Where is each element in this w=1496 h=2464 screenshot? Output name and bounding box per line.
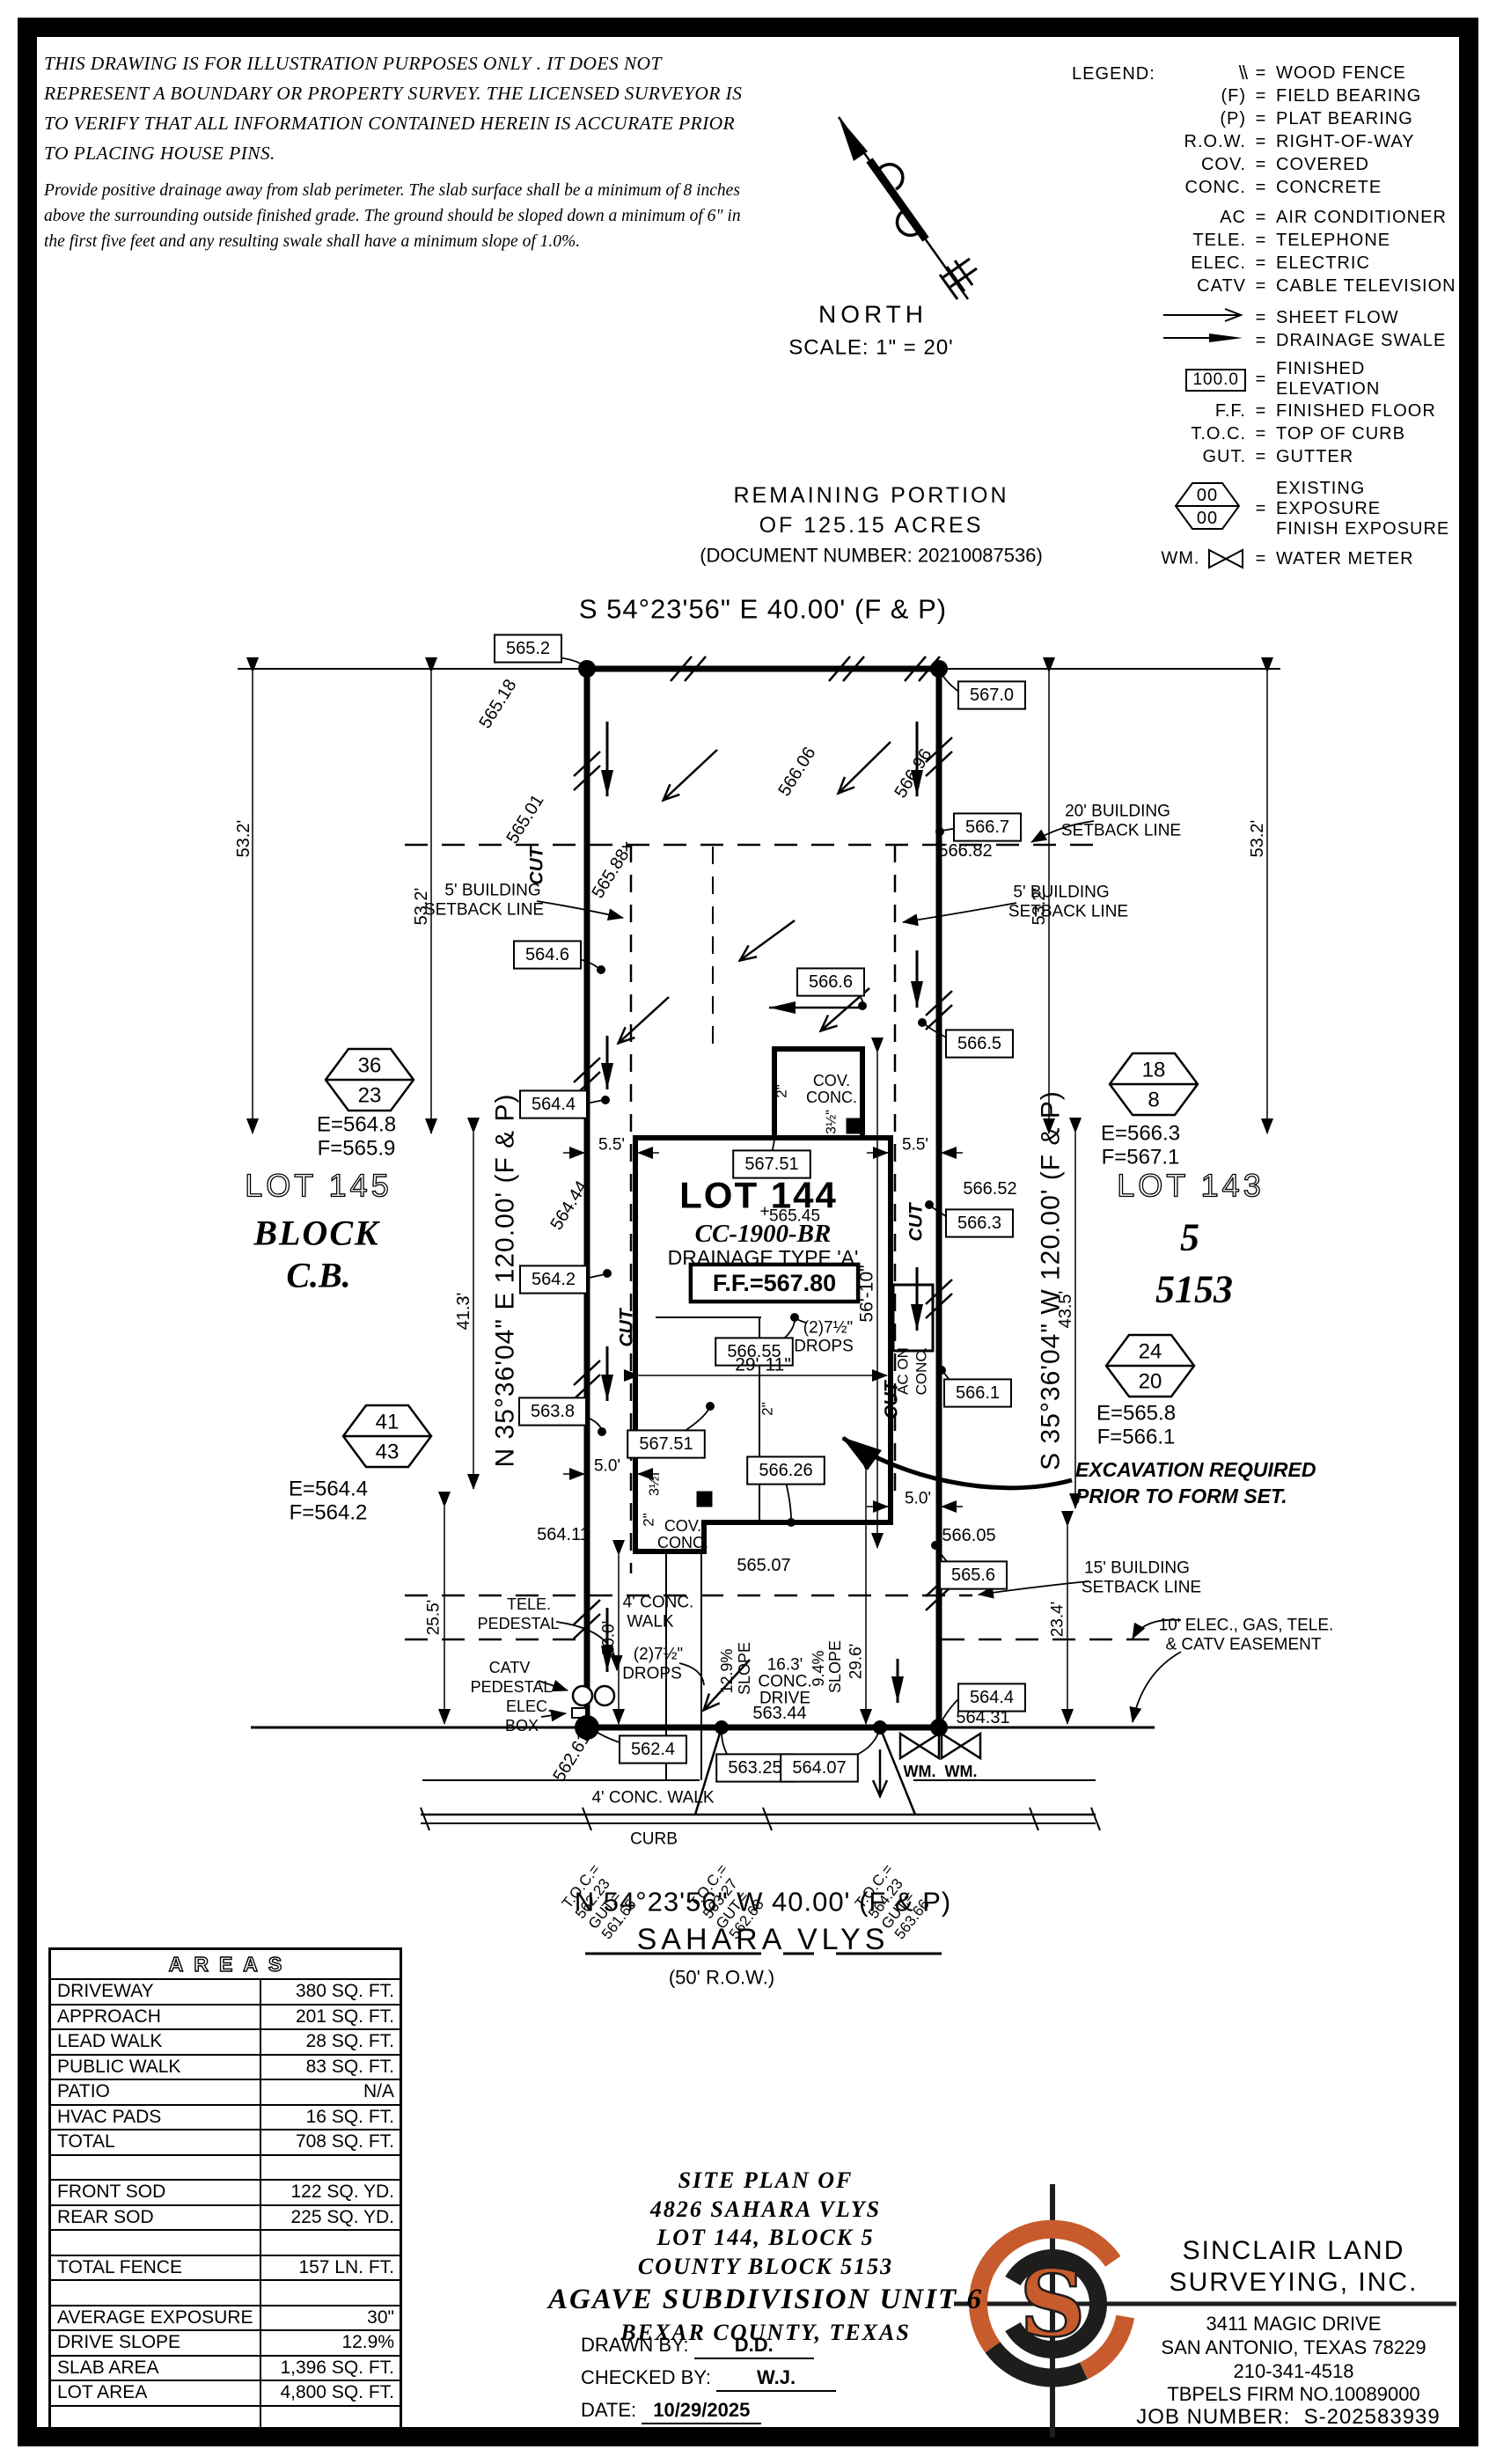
- water-meter-icon: [942, 1734, 980, 1758]
- plot-label: 2": [641, 1513, 657, 1527]
- checked-by-label: CHECKED BY:: [581, 2366, 711, 2388]
- plot-label: F=566.1: [1097, 1426, 1176, 1449]
- scale-label: SCALE: 1" = 20': [788, 336, 954, 360]
- legend-row-finished-floor: F.F.=FINISHED FLOOR: [1149, 400, 1459, 422]
- areas-table: AREAS DRIVEWAY380 SQ. FT.APPROACH201 SQ.…: [48, 1947, 402, 2432]
- areas-label: AVERAGE EXPOSURE: [51, 2306, 261, 2330]
- drawn-by-value: D.D.: [694, 2334, 814, 2359]
- legend-symbol: [1149, 330, 1246, 351]
- firm-street: 3411 MAGIC DRIVE: [1126, 2313, 1461, 2336]
- plot-label: 566.52: [963, 1179, 1016, 1199]
- areas-value: 1,396 SQ. FT.: [261, 2358, 400, 2379]
- legend-label: ELECTRIC: [1276, 253, 1459, 274]
- subdivision-name: AGAVE SUBDIVISION UNIT 6: [466, 2281, 1065, 2319]
- north-label: NORTH: [818, 301, 928, 328]
- areas-row-front-sod: FRONT SOD122 SQ. YD.: [51, 2181, 400, 2206]
- remaining-portion-line2: OF 125.15 ACRES: [759, 513, 984, 538]
- legend-label: DRAINAGE SWALE: [1276, 331, 1459, 351]
- legend: LEGEND: \\=WOOD FENCE(F)=FIELD BEARING(P…: [1072, 62, 1459, 570]
- plot-label: (2)7½": [634, 1646, 683, 1664]
- areas-label: [51, 2407, 261, 2431]
- porch-column: [847, 1118, 862, 1133]
- plot-label: 566.5: [957, 1034, 1001, 1053]
- plot-label: 16.3': [767, 1656, 803, 1675]
- areas-row-blank: [51, 2407, 400, 2431]
- bearing-east-line: S 35°36'04" W 120.00' (F & P): [1037, 1090, 1066, 1470]
- legend-row-plat-bearing: (P)=PLAT BEARING: [1149, 107, 1459, 130]
- legend-symbol: [1149, 307, 1246, 328]
- plot-label: DROPS: [794, 1338, 854, 1356]
- plot-label: 10' ELEC., GAS, TELE.: [1159, 1617, 1334, 1635]
- plot-label: 567.51: [639, 1434, 693, 1454]
- areas-value: N/A: [261, 2081, 400, 2102]
- plot-label: 29'-11": [735, 1355, 791, 1375]
- areas-row-patio: PATION/A: [51, 2080, 400, 2106]
- legend-symbol: (P): [1149, 109, 1246, 129]
- plot-label: (2)7½": [803, 1319, 853, 1338]
- legend-symbol: TELE.: [1149, 231, 1246, 251]
- firm-city: SAN ANTONIO, TEXAS 78229: [1126, 2336, 1461, 2360]
- svg-text:00: 00: [1197, 509, 1218, 528]
- plot-label: 567.51: [744, 1155, 798, 1174]
- areas-row-rear-sod: REAR SOD225 SQ. YD.: [51, 2206, 400, 2232]
- legend-label: TOP OF CURB: [1276, 424, 1459, 444]
- legend-row-cable-television: CATV=CABLE TELEVISION: [1149, 275, 1459, 297]
- plot-label: 53.2': [1248, 820, 1267, 858]
- plot-label: 5.0': [905, 1490, 931, 1508]
- plot-label: 20.0': [600, 1621, 619, 1657]
- legend-label: EXISTING EXPOSURE FINISH EXPOSURE: [1276, 479, 1459, 539]
- plot-label: 565.07: [737, 1556, 790, 1575]
- plot-label: 23: [358, 1084, 382, 1108]
- plot-label: 563.8: [531, 1402, 575, 1421]
- areas-value: 83 SQ. FT.: [261, 2057, 400, 2078]
- plot-label: +: [621, 836, 633, 858]
- areas-label: HVAC PADS: [51, 2106, 261, 2130]
- areas-row-driveway: DRIVEWAY380 SQ. FT.: [51, 1980, 400, 2006]
- areas-row-lot-area: LOT AREA4,800 SQ. FT.: [51, 2381, 400, 2407]
- plot-label: COV.: [664, 1517, 701, 1535]
- plot-label: 564.4: [970, 1688, 1014, 1707]
- legend-symbol: CATV: [1149, 276, 1246, 297]
- areas-row-average-exposure: AVERAGE EXPOSURE30": [51, 2306, 400, 2332]
- areas-label: PATIO: [51, 2080, 261, 2104]
- plot-label: 562.61: [549, 1729, 594, 1786]
- areas-value: 157 LN. FT.: [261, 2257, 400, 2278]
- legend-label: SHEET FLOW: [1276, 308, 1459, 328]
- plot-label: SLOPE: [826, 1640, 844, 1693]
- areas-label: TOTAL: [51, 2130, 261, 2154]
- legend-label: FINISHED FLOOR: [1276, 401, 1459, 422]
- areas-label: LEAD WALK: [51, 2030, 261, 2054]
- plot-label: 566.6: [809, 972, 853, 992]
- plot-label: 564.11: [537, 1525, 590, 1544]
- areas-value: 16 SQ. FT.: [261, 2107, 400, 2128]
- areas-table-rows: DRIVEWAY380 SQ. FT.APPROACH201 SQ. FT.LE…: [51, 1980, 400, 2430]
- finished-floor-elevation: F.F.=567.80: [713, 1270, 836, 1296]
- plot-label: 562.4: [631, 1740, 675, 1759]
- plot-label: 566.05: [942, 1526, 995, 1545]
- plot-label: 565.2: [506, 639, 550, 658]
- firm-registration: TBPELS FIRM NO.10089000: [1126, 2383, 1461, 2407]
- plot-label: 5.0': [594, 1457, 620, 1476]
- plot-label: E=565.8: [1096, 1402, 1176, 1426]
- plot-label: E=564.8: [317, 1113, 396, 1137]
- date-label: DATE:: [581, 2399, 636, 2421]
- plot-label: 2": [759, 1402, 776, 1416]
- areas-row-lead-walk: LEAD WALK28 SQ. FT.: [51, 2030, 400, 2056]
- legend-symbol: AC: [1149, 208, 1246, 228]
- legend-row-finished-elevation: 100.0=FINISHED ELEVATION: [1149, 359, 1459, 400]
- plot-label: 4' CONC. WALK: [591, 1789, 714, 1808]
- plot-label: F=565.9: [318, 1137, 396, 1161]
- legend-symbol: 100.0: [1149, 370, 1246, 390]
- legend-row-covered: COV.=COVERED: [1149, 153, 1459, 176]
- areas-value: 122 SQ. YD.: [261, 2182, 400, 2203]
- plot-label: 564.2: [532, 1270, 576, 1289]
- legend-label: WATER METER: [1276, 549, 1459, 569]
- plan-code: CC-1900-BR: [695, 1220, 832, 1248]
- areas-row-blank: [51, 2231, 400, 2256]
- plot-label: 29.6': [847, 1644, 866, 1680]
- areas-row-public-walk: PUBLIC WALK83 SQ. FT.: [51, 2056, 400, 2081]
- areas-row-total: TOTAL708 SQ. FT.: [51, 2130, 400, 2156]
- plot-label: CONC.: [806, 1089, 857, 1106]
- areas-row-total-fence: TOTAL FENCE157 LN. FT.: [51, 2256, 400, 2282]
- areas-label: APPROACH: [51, 2006, 261, 2029]
- drainage-type: DRAINAGE TYPE 'A': [668, 1246, 859, 1269]
- job-number-value: S-202583939: [1304, 2405, 1441, 2429]
- areas-row-blank: [51, 2156, 400, 2182]
- plot-label: PEDESTAL: [471, 1678, 553, 1696]
- areas-value: 28 SQ. FT.: [261, 2031, 400, 2052]
- site-plan-page: S REMAINING PORTIONOF 125.15 ACRES(DOCUM…: [0, 0, 1496, 2464]
- plot-label: DROPS: [622, 1665, 682, 1683]
- legend-row-wood-fence: \\=WOOD FENCE: [1149, 62, 1459, 84]
- legend-row-telephone: TELE.=TELEPHONE: [1149, 229, 1459, 252]
- plot-label: DRIVE: [759, 1690, 810, 1708]
- plot-label: 5153: [1155, 1268, 1233, 1311]
- plot-label: E=566.3: [1101, 1122, 1180, 1146]
- plot-label: 25.5': [425, 1600, 444, 1636]
- plot-label: 8: [1148, 1089, 1159, 1112]
- areas-value: 30": [261, 2307, 400, 2328]
- legend-symbol: GUT.: [1149, 447, 1246, 467]
- job-number-label: JOB NUMBER:: [1136, 2405, 1290, 2429]
- remaining-portion-line1: REMAINING PORTION: [733, 483, 1008, 508]
- legend-label: FIELD BEARING: [1276, 86, 1459, 106]
- legend-symbol: COV.: [1149, 155, 1246, 175]
- areas-value: 4,800 SQ. FT.: [261, 2382, 400, 2403]
- plot-label: CONC.: [657, 1534, 708, 1551]
- lot-144-label: LOT 144: [679, 1175, 838, 1216]
- plot-label: 566.82: [938, 841, 992, 861]
- svg-text:00: 00: [1197, 486, 1218, 505]
- plot-label: 41: [376, 1411, 400, 1434]
- legend-row-air-conditioner: AC=AIR CONDITIONER: [1149, 206, 1459, 229]
- plot-label: 2": [774, 1084, 790, 1098]
- legend-symbol: WM.: [1149, 548, 1246, 569]
- plot-label: CONC.: [758, 1673, 811, 1691]
- plot-label: 567.0: [970, 686, 1014, 705]
- water-meter-label: WM.: [904, 1763, 936, 1780]
- plot-label: 41.3': [454, 1293, 473, 1331]
- firm-phone: 210-341-4518: [1126, 2360, 1461, 2384]
- legend-row-sheet-flow: =SHEET FLOW: [1149, 306, 1459, 329]
- plot-label: CUT: [882, 1379, 902, 1419]
- north-arrow-icon: [839, 117, 977, 299]
- firm-name: SINCLAIR LAND SURVEYING, INC.: [1135, 2235, 1452, 2299]
- drawn-by-label: DRAWN BY:: [581, 2334, 689, 2356]
- areas-label: DRIVE SLOPE: [51, 2331, 261, 2355]
- plot-label: 5' BUILDING: [1013, 884, 1109, 902]
- firm-name-line2: SURVEYING, INC.: [1135, 2267, 1452, 2299]
- title-line: LOT 144, BLOCK 5: [466, 2224, 1065, 2253]
- plot-label: 36: [358, 1054, 382, 1078]
- areas-row-drive-slope: DRIVE SLOPE12.9%: [51, 2331, 400, 2357]
- date-value: 10/29/2025: [642, 2399, 761, 2424]
- plot-label: 53.2': [234, 820, 253, 858]
- legend-label: AIR CONDITIONER: [1276, 208, 1459, 228]
- plot-label: 15' BUILDING: [1084, 1559, 1190, 1578]
- legend-label: COVERED: [1276, 155, 1459, 175]
- areas-row-hvac-pads: HVAC PADS16 SQ. FT.: [51, 2106, 400, 2131]
- plot-label: 564.31: [956, 1708, 1009, 1727]
- plot-label: C.B.: [286, 1256, 350, 1295]
- plot-label: COV.: [813, 1072, 850, 1089]
- plot-label: 9.4%: [810, 1650, 827, 1686]
- areas-label: [51, 2231, 261, 2255]
- plot-label: 18: [1142, 1059, 1166, 1082]
- plot-label: CONC.: [913, 1347, 930, 1396]
- plot-label: 4' CONC.: [623, 1594, 694, 1612]
- plot-label: F=564.2: [290, 1501, 368, 1525]
- legend-symbol: ELEC.: [1149, 253, 1246, 274]
- plot-label: 566.7: [965, 818, 1009, 837]
- job-number: JOB NUMBER: S-202583939: [1116, 2405, 1461, 2430]
- plot-label: SETBACK LINE: [1008, 903, 1128, 921]
- areas-value: 201 SQ. FT.: [261, 2006, 400, 2028]
- plot-label: 24: [1139, 1340, 1162, 1364]
- areas-label: REAR SOD: [51, 2206, 261, 2230]
- plot-label: 3½": [825, 1110, 840, 1134]
- plot-label: 56'-10": [857, 1265, 877, 1322]
- plot-label: 566.3: [957, 1214, 1001, 1233]
- areas-label: SLAB AREA: [51, 2357, 261, 2380]
- legend-label: WOOD FENCE: [1276, 63, 1459, 84]
- areas-label: LOT AREA: [51, 2381, 261, 2405]
- legend-symbol: T.O.C.: [1149, 424, 1246, 444]
- legend-symbol: (F): [1149, 86, 1246, 106]
- plot-label: CURB: [630, 1830, 678, 1849]
- plot-label: CATV: [489, 1659, 531, 1676]
- plot-label: & CATV EASEMENT: [1165, 1636, 1321, 1654]
- legend-label: RIGHT-OF-WAY: [1276, 132, 1459, 152]
- bearing-west-line: N 35°36'04" E 120.00' (F & P): [491, 1094, 520, 1468]
- plot-label: WALK: [627, 1613, 673, 1632]
- plot-label: E=564.4: [289, 1478, 368, 1501]
- plot-label: SETBACK LINE: [1082, 1579, 1201, 1597]
- plot-label: CUT: [617, 1307, 637, 1346]
- firm-address: 3411 MAGIC DRIVE SAN ANTONIO, TEXAS 7822…: [1126, 2313, 1461, 2407]
- legend-row-existing-exposure: 0000=EXISTING EXPOSURE FINISH EXPOSURE: [1149, 477, 1459, 540]
- areas-label: [51, 2156, 261, 2180]
- legend-label: GUTTER: [1276, 447, 1459, 467]
- title-line: COUNTY BLOCK 5153: [466, 2253, 1065, 2282]
- areas-row-slab-area: SLAB AREA1,396 SQ. FT.: [51, 2357, 400, 2382]
- drainage-note: Provide positive drainage away from slab…: [44, 178, 759, 255]
- plot-label: 3½": [648, 1471, 663, 1496]
- legend-row-electric: ELEC.=ELECTRIC: [1149, 252, 1459, 275]
- legend-row-field-bearing: (F)=FIELD BEARING: [1149, 84, 1459, 107]
- plot-label: TELE.: [507, 1595, 551, 1613]
- title-line: 4826 SAHARA VLYS: [466, 2196, 1065, 2225]
- plot-label: BOX: [505, 1717, 539, 1734]
- areas-value: 12.9%: [261, 2332, 400, 2353]
- plot-label: SETBACK LINE: [1061, 822, 1181, 840]
- plot-label: 566.06: [774, 744, 819, 800]
- legend-title: LEGEND:: [1072, 64, 1155, 84]
- legend-row-drainage-swale: =DRAINAGE SWALE: [1149, 329, 1459, 352]
- areas-row-approach: APPROACH201 SQ. FT.: [51, 2006, 400, 2031]
- title-block: SITE PLAN OF 4826 SAHARA VLYS LOT 144, B…: [466, 2167, 1065, 2347]
- water-meter-icon: [900, 1734, 939, 1758]
- plot-label: CUT: [527, 845, 547, 884]
- lot-143-label: LOT 143: [1117, 1168, 1264, 1204]
- plot-label: 5.5': [902, 1136, 928, 1155]
- plot-label: 43: [376, 1441, 400, 1464]
- plot-label: 20: [1139, 1370, 1162, 1394]
- signature-block: DRAWN BY: D.D. CHECKED BY: W.J. DATE: 10…: [581, 2334, 898, 2431]
- areas-value: 708 SQ. FT.: [261, 2131, 400, 2152]
- legend-symbol: CONC.: [1149, 178, 1246, 198]
- plot-label: 565.01: [502, 791, 547, 847]
- plot-label: 5.5': [598, 1136, 625, 1155]
- areas-label: DRIVEWAY: [51, 1980, 261, 2004]
- plot-label: 564.4: [532, 1095, 576, 1114]
- legend-label: TELEPHONE: [1276, 231, 1459, 251]
- plot-label: SETBACK LINE: [424, 901, 544, 920]
- plot-label: 564.07: [792, 1758, 846, 1778]
- legend-row-water-meter: WM. =WATER METER: [1149, 547, 1459, 570]
- legend-row-right-of-way: R.O.W.=RIGHT-OF-WAY: [1149, 130, 1459, 153]
- excavation-note: EXCAVATION REQUIREDPRIOR TO FORM SET.: [1075, 1458, 1316, 1507]
- legend-symbol: R.O.W.: [1149, 132, 1246, 152]
- plot-label: SLOPE: [736, 1642, 753, 1695]
- plot-label: 12.9%: [718, 1648, 736, 1693]
- plot-label: 563.25: [728, 1758, 781, 1778]
- areas-label: TOTAL FENCE: [51, 2256, 261, 2280]
- areas-value: 380 SQ. FT.: [261, 1981, 400, 2002]
- bearing-south-line: N 54°23'56" W 40.00' (F & P): [575, 1887, 952, 1918]
- document-number: (DOCUMENT NUMBER: 20210087536): [700, 545, 1043, 567]
- plot-label: F=567.1: [1102, 1146, 1180, 1170]
- street-name: SAHARA VLYS: [637, 1923, 890, 1956]
- legend-rows: \\=WOOD FENCE(F)=FIELD BEARING(P)=PLAT B…: [1149, 62, 1459, 570]
- plot-label: 23.4': [1049, 1602, 1067, 1638]
- plot-label: PEDESTAL: [478, 1615, 560, 1632]
- checked-by-value: W.J.: [716, 2366, 836, 2392]
- areas-value: 225 SQ. YD.: [261, 2207, 400, 2228]
- plot-label: 20' BUILDING: [1065, 803, 1170, 821]
- legend-row-top-of-curb: T.O.C.=TOP OF CURB: [1149, 422, 1459, 445]
- areas-label: [51, 2281, 261, 2305]
- plot-label: ELEC.: [506, 1698, 552, 1715]
- legend-symbol: F.F.: [1149, 401, 1246, 422]
- legend-label: CABLE TELEVISION: [1276, 276, 1459, 297]
- legend-label: PLAT BEARING: [1276, 109, 1459, 129]
- plot-label: 565.6: [951, 1566, 995, 1585]
- legend-row-gutter: GUT.=GUTTER: [1149, 445, 1459, 468]
- porch-column: [697, 1492, 712, 1507]
- legend-symbol: \\: [1149, 62, 1246, 84]
- legend-row-concrete: CONC.=CONCRETE: [1149, 176, 1459, 199]
- title-line: SITE PLAN OF: [466, 2167, 1065, 2196]
- areas-row-blank: [51, 2281, 400, 2306]
- plot-label: 566.1: [956, 1383, 1000, 1403]
- catv-pedestal-icon: [573, 1686, 592, 1705]
- legend-label: CONCRETE: [1276, 178, 1459, 198]
- areas-label: FRONT SOD: [51, 2181, 261, 2204]
- areas-label: PUBLIC WALK: [51, 2056, 261, 2079]
- lot-145-label: LOT 145: [245, 1168, 392, 1204]
- firm-name-line1: SINCLAIR LAND: [1135, 2235, 1452, 2267]
- row-width: (50' R.O.W.): [669, 1967, 774, 1989]
- plot-label: 5: [1180, 1216, 1199, 1259]
- disclaimer-text: THIS DRAWING IS FOR ILLUSTRATION PURPOSE…: [44, 49, 759, 169]
- legend-label: FINISHED ELEVATION: [1276, 359, 1459, 400]
- plot-label: CUT: [906, 1201, 927, 1241]
- disclaimer-block: THIS DRAWING IS FOR ILLUSTRATION PURPOSE…: [44, 49, 759, 255]
- legend-symbol: 0000: [1149, 477, 1246, 540]
- areas-table-title: AREAS: [51, 1950, 400, 1980]
- tele-pedestal-icon: [595, 1686, 614, 1705]
- plot-label: 564.6: [525, 945, 569, 964]
- plot-label: 565.18: [475, 676, 520, 732]
- plot-label: 566.26: [759, 1461, 812, 1480]
- plot-label: BLOCK: [253, 1214, 380, 1253]
- water-meter-label: WM.: [945, 1763, 978, 1780]
- bearing-north-line: S 54°23'56" E 40.00' (F & P): [579, 594, 947, 625]
